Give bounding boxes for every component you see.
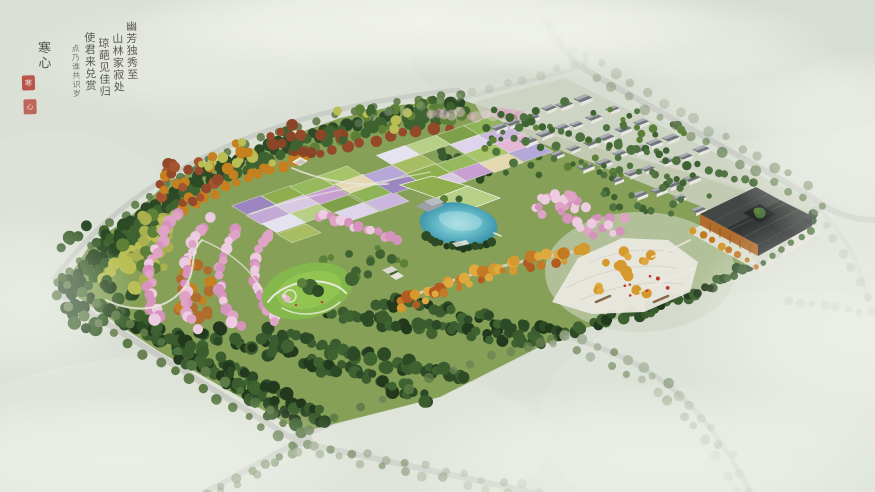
street-tree (610, 348, 618, 356)
villa-hedge (595, 137, 601, 143)
tree (193, 324, 203, 334)
golden-tree (597, 287, 604, 294)
tree (236, 321, 246, 331)
tree (286, 119, 298, 131)
villa-tree (500, 130, 505, 135)
golden-tree (397, 303, 406, 312)
street-tree (468, 87, 477, 96)
tree (205, 212, 216, 223)
villa-tree (590, 110, 596, 116)
tree (503, 170, 509, 176)
golden-tree (561, 259, 567, 265)
villa-tree (620, 117, 625, 122)
tree (589, 231, 597, 239)
villa-hedge (662, 157, 669, 164)
street-tree (586, 352, 596, 362)
villa-tree (707, 193, 712, 198)
villa-tree (615, 154, 622, 161)
tree (327, 350, 338, 361)
villa-tree (611, 194, 617, 200)
villa-hedge (565, 130, 572, 137)
villa-hedge (705, 166, 713, 174)
tree (183, 165, 193, 175)
tree (366, 226, 375, 235)
street-tree (424, 373, 434, 383)
tree (377, 347, 391, 361)
tree (316, 150, 324, 158)
tree (204, 162, 213, 171)
villa-tree (669, 200, 677, 208)
villa-tree (663, 147, 670, 154)
street-tree (201, 367, 211, 377)
tree (333, 106, 342, 115)
tree (232, 179, 240, 187)
tree (616, 227, 625, 236)
tree (609, 230, 616, 237)
villa-hedge (558, 128, 564, 134)
street-tree (220, 377, 231, 388)
lakeshore-conifer (437, 240, 443, 246)
tree (269, 159, 276, 166)
villa-tree (601, 163, 607, 169)
golden-tree (557, 247, 569, 259)
villa-hedge (520, 113, 528, 121)
street-tree (466, 360, 474, 368)
tree (201, 184, 211, 194)
tree (160, 186, 169, 195)
tree (318, 210, 328, 220)
golden-tree (526, 263, 535, 272)
tree (391, 116, 400, 125)
street-tree (379, 396, 386, 403)
tree (581, 202, 591, 212)
villa-tree (482, 124, 490, 132)
lawn-tree (345, 272, 359, 286)
street-tree (638, 362, 649, 373)
villa-tree (532, 107, 540, 115)
villa-tree (522, 139, 529, 146)
tree (558, 208, 566, 216)
street-tree (404, 384, 414, 394)
tree (312, 117, 320, 125)
tree (232, 158, 242, 168)
tree (151, 327, 161, 337)
street-tree (518, 76, 527, 85)
street-tree (485, 85, 494, 94)
tree (595, 214, 602, 221)
villa-tree (509, 159, 518, 168)
street-tree (450, 367, 458, 375)
street-tree (171, 366, 180, 375)
street-tree (506, 347, 515, 356)
street-tree (123, 339, 133, 349)
villa-tree (628, 192, 635, 199)
street-tree (608, 362, 616, 370)
villa-hedge (491, 107, 498, 114)
villa-tree (647, 207, 655, 215)
villa-tree (536, 172, 543, 179)
villa-tree (680, 179, 687, 186)
tree (313, 357, 324, 368)
tree (375, 245, 381, 251)
tree (587, 219, 597, 229)
tree (196, 193, 204, 201)
villa-tree (592, 154, 599, 161)
villa-tree (583, 163, 589, 169)
golden-tree (466, 281, 473, 288)
street-tree (199, 384, 208, 393)
golden-tree (620, 266, 632, 278)
villa-tree (601, 191, 608, 198)
tree (392, 235, 402, 245)
tree (437, 362, 450, 375)
tree (405, 121, 414, 130)
aerial-rendering-stage: 幽芳独秀至 山林家寂处 琼葩见佳归 使君来兑赏 点乃谁共识岁 寒心 寒 心 (0, 0, 875, 492)
tree (391, 321, 402, 332)
street-tree (140, 329, 148, 337)
tree (257, 133, 265, 141)
villa-tree (571, 161, 576, 166)
villa-hedge (549, 127, 555, 133)
golden-tree (541, 249, 552, 260)
villa-hedge (655, 151, 663, 159)
tree (484, 310, 494, 320)
villa-hedge (575, 132, 585, 142)
street-tree (504, 79, 512, 87)
villa-tree (664, 174, 670, 180)
villa-hedge (539, 123, 547, 131)
street-tree (623, 355, 633, 365)
tree (291, 330, 301, 340)
tree (368, 123, 378, 133)
tree (278, 161, 289, 172)
tree (378, 125, 387, 134)
tree (181, 299, 189, 307)
tree (353, 221, 364, 232)
tree (306, 147, 317, 158)
tree (185, 340, 197, 352)
street-tree (487, 351, 496, 360)
villa-tree (690, 172, 696, 178)
golden-tree (456, 284, 463, 291)
tree (455, 107, 465, 117)
villa-tree (510, 135, 517, 142)
tree (203, 266, 212, 275)
tree (178, 183, 187, 192)
tree (401, 323, 410, 332)
tree (131, 201, 139, 209)
villa-tree (551, 155, 558, 162)
tree (398, 128, 407, 137)
street-tree (137, 350, 147, 360)
villa-hedge (632, 145, 640, 153)
tree (277, 139, 287, 149)
street-tree (186, 360, 197, 371)
tree (562, 213, 573, 224)
flower-accent (629, 294, 632, 297)
tree (248, 343, 257, 352)
tree (566, 191, 577, 202)
tree (315, 405, 324, 414)
tree (575, 323, 586, 334)
tree (247, 168, 256, 177)
villa-tree (659, 184, 667, 192)
villa-hedge (614, 139, 623, 148)
street-tree (649, 373, 656, 380)
street-tree (436, 97, 443, 104)
tree (300, 332, 312, 344)
villa-hedge (694, 161, 700, 167)
tree (363, 352, 377, 366)
tree (275, 150, 285, 160)
entry-tree (700, 231, 708, 239)
villa-tree (481, 145, 488, 152)
street-tree (174, 347, 182, 355)
tree (216, 352, 227, 363)
tree (374, 227, 382, 235)
tree (281, 339, 294, 352)
street-tree (550, 340, 557, 347)
flower-accent (624, 284, 627, 287)
street-tree (523, 342, 533, 352)
villa-tree (668, 210, 674, 216)
golden-tree (412, 301, 420, 309)
tree (538, 210, 547, 219)
tree (379, 361, 391, 373)
tree (368, 370, 376, 378)
villa-tree (609, 176, 615, 182)
villa-tree (678, 196, 685, 203)
lawn-tree (312, 285, 324, 297)
street-tree (354, 119, 362, 127)
golden-tree (631, 285, 641, 295)
tree (387, 254, 397, 264)
golden-tree (410, 290, 420, 300)
flower-accent (666, 286, 670, 290)
tree (208, 152, 217, 161)
lawn-tree (297, 278, 307, 288)
tree (198, 161, 205, 168)
tree (337, 360, 346, 369)
flower-accent (295, 304, 298, 307)
tree (188, 240, 196, 248)
entry-tree (709, 237, 715, 243)
villa-tree (649, 169, 656, 176)
villa-tree (627, 163, 634, 170)
tree (471, 327, 480, 336)
villa-tree (603, 124, 610, 131)
golden-tree (509, 255, 520, 266)
mist (20, 0, 380, 120)
tree (229, 170, 239, 180)
villa-hedge (505, 113, 514, 122)
villa-tree (609, 203, 617, 211)
villa-hedge (585, 136, 592, 143)
tree (254, 245, 263, 254)
villa-tree (634, 202, 641, 209)
golden-tree (509, 267, 517, 275)
villa-hedge (528, 117, 536, 125)
flower-accent (629, 283, 631, 285)
street-tree (237, 387, 244, 394)
golden-tree (478, 277, 485, 284)
tree (286, 131, 296, 141)
villa-tree (616, 166, 624, 174)
tree (187, 314, 197, 324)
street-tree (416, 101, 425, 110)
tree (354, 138, 364, 148)
tree (192, 293, 202, 303)
flower-accent (656, 277, 660, 281)
street-tree (536, 338, 546, 348)
tree (458, 372, 470, 384)
street-tree (156, 358, 166, 368)
tree (213, 337, 222, 346)
street-tree (623, 371, 630, 378)
villa-hedge (682, 161, 691, 170)
tree (139, 213, 151, 225)
entry-tree (689, 227, 696, 234)
tree (327, 145, 337, 155)
tree (316, 342, 324, 350)
tree (519, 320, 530, 331)
villa-tree (560, 97, 569, 106)
street-tree (702, 138, 710, 146)
street-tree (383, 106, 393, 116)
tree (243, 148, 252, 157)
street-tree (594, 343, 602, 351)
tree (226, 316, 238, 328)
golden-tree (500, 268, 506, 274)
tree (426, 110, 435, 119)
tree (533, 125, 539, 131)
villa-tree (652, 132, 658, 138)
tree (464, 315, 473, 324)
tree (277, 128, 285, 136)
tree (145, 270, 153, 278)
tree (446, 305, 455, 314)
tree (535, 203, 543, 211)
golden-tree (551, 258, 561, 268)
villa-tree (607, 107, 613, 113)
tree (620, 213, 630, 223)
tree (215, 271, 224, 280)
tree (400, 259, 409, 268)
golden-tree (432, 290, 439, 297)
flower-bed (282, 294, 287, 299)
tree (130, 230, 140, 240)
tree (537, 194, 545, 202)
villa-tree (620, 122, 625, 127)
tree (389, 124, 399, 134)
tree (169, 162, 180, 173)
tree (240, 368, 250, 378)
street-tree (559, 330, 570, 341)
street-tree (356, 403, 365, 412)
tree (432, 320, 442, 330)
villa-tree (537, 144, 544, 151)
villa-hedge (497, 111, 504, 118)
street-tree (402, 107, 410, 115)
villa-tree (498, 137, 503, 142)
golden-tree (578, 243, 590, 255)
villa-tree (616, 203, 623, 210)
lakeshore-tree (456, 196, 463, 203)
villa-tree (636, 169, 642, 175)
villa-tree (638, 130, 646, 138)
tree (366, 257, 375, 266)
tree (315, 129, 326, 140)
tree (210, 190, 220, 200)
villa-tree (596, 169, 602, 175)
tree (345, 250, 353, 258)
golden-tree (444, 278, 454, 288)
tree (146, 193, 153, 200)
villa-tree (634, 124, 640, 130)
flower-accent (321, 301, 324, 304)
street-tree (454, 93, 462, 101)
golden-tree (422, 297, 429, 304)
tree (508, 323, 517, 332)
flower-accent (649, 275, 652, 278)
villa-hedge (644, 149, 650, 155)
golden-tree (485, 273, 493, 281)
tree (195, 166, 204, 175)
tree (227, 366, 235, 374)
tree (290, 144, 298, 152)
tree (202, 306, 213, 317)
tree (419, 395, 431, 407)
tree (339, 136, 348, 145)
tree (229, 333, 241, 345)
tree (572, 217, 583, 228)
tree (196, 345, 209, 358)
villa-hedge (606, 142, 612, 148)
street-tree (573, 346, 581, 354)
tree (429, 96, 438, 105)
tree (295, 130, 306, 141)
villa-tree (552, 142, 561, 151)
tree (347, 348, 360, 361)
tree (116, 238, 129, 251)
lakeshore-conifer (487, 237, 496, 246)
tree (550, 189, 560, 199)
tree (238, 138, 246, 146)
villa-tree (674, 176, 680, 182)
street-tree (577, 334, 587, 344)
tree (471, 111, 483, 123)
street-tree (369, 114, 376, 121)
tree (188, 197, 197, 206)
tree (160, 263, 168, 271)
tree (204, 358, 213, 367)
tree (217, 152, 228, 163)
villa-tree (490, 137, 497, 144)
villa-tree (492, 148, 500, 156)
golden-tree (536, 260, 545, 269)
tree (328, 254, 334, 260)
golden-tree (439, 288, 448, 297)
tree (570, 205, 579, 214)
tree (388, 382, 397, 391)
park-masterplan-rendering (0, 0, 875, 492)
tree (371, 136, 382, 147)
tree (215, 323, 228, 336)
street-tree (157, 338, 165, 346)
tree (270, 317, 279, 326)
golden-tree (624, 253, 631, 260)
tree (364, 270, 372, 278)
